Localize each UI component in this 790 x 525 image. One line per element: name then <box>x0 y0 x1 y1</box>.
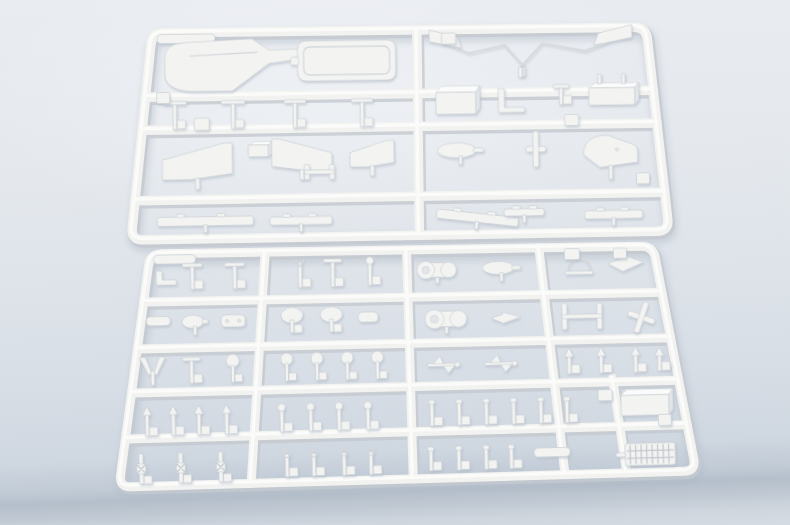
part-ball <box>226 354 243 382</box>
part-post <box>538 397 552 423</box>
part-ball <box>371 351 387 379</box>
part-strip <box>270 213 332 232</box>
part-post <box>564 397 578 423</box>
part-post <box>428 447 442 471</box>
part-plate <box>153 255 195 265</box>
part-pad <box>636 173 649 184</box>
part-winch <box>417 261 457 284</box>
part-wedge <box>162 143 233 190</box>
part-pad <box>613 248 626 258</box>
part-post <box>508 444 522 468</box>
part-box3d <box>589 74 639 106</box>
part-ball <box>341 352 357 380</box>
part-post <box>483 398 497 424</box>
part-plate <box>534 447 570 457</box>
part-post <box>182 357 202 383</box>
part-pad <box>157 92 170 103</box>
part-post <box>631 346 647 372</box>
part-plate <box>358 312 378 322</box>
part-ball <box>280 353 296 381</box>
part-winch <box>425 309 467 334</box>
part-pad <box>598 390 612 401</box>
part-wedge <box>350 140 395 176</box>
part-bollard <box>136 454 152 484</box>
part-post <box>142 406 158 436</box>
part-post <box>429 400 443 426</box>
part-plateOutline <box>290 40 396 81</box>
part-post <box>456 399 470 425</box>
part-plate <box>221 315 245 327</box>
part-dart <box>491 312 521 324</box>
part-box3d <box>436 86 480 115</box>
part-anchor <box>427 355 460 374</box>
part-post <box>368 449 382 475</box>
part-post <box>564 348 580 374</box>
part-post <box>307 403 322 432</box>
part-paddle <box>182 315 208 336</box>
part-post <box>224 263 245 289</box>
part-paddle <box>437 142 483 165</box>
part-post <box>596 347 612 373</box>
part-post <box>483 445 497 469</box>
part-bollard <box>176 453 192 483</box>
part-cross <box>623 298 660 337</box>
part-post <box>222 404 238 434</box>
part-post <box>510 398 524 424</box>
part-paddle <box>482 261 520 282</box>
part-anchor <box>485 354 518 373</box>
product-photo-background <box>0 0 790 525</box>
part-post <box>364 401 379 430</box>
part-dome <box>281 307 303 333</box>
part-post <box>341 450 355 476</box>
part-pad <box>564 248 579 259</box>
part-dome <box>320 307 342 333</box>
sprue-scene <box>0 0 790 525</box>
part-cross <box>526 131 547 167</box>
part-whale <box>583 135 638 180</box>
sprue-upper <box>131 25 670 246</box>
part-elbow <box>156 271 176 285</box>
part-hframe <box>562 303 603 330</box>
part-box3d <box>621 389 674 416</box>
part-post <box>335 402 350 431</box>
part-box3d <box>248 141 272 156</box>
part-ball <box>311 352 327 380</box>
part-post <box>456 446 470 470</box>
part-strip <box>584 207 642 226</box>
part-post <box>168 405 184 435</box>
part-pad <box>658 414 671 425</box>
sprue-lower <box>119 245 696 492</box>
part-bollard <box>216 452 232 482</box>
part-post <box>194 405 210 435</box>
part-post <box>284 451 298 477</box>
part-post <box>310 450 324 476</box>
part-strip <box>157 213 253 234</box>
part-post <box>278 403 293 432</box>
part-post <box>182 263 203 289</box>
part-pad <box>565 114 579 125</box>
part-plate <box>146 316 170 325</box>
part-pad <box>194 118 209 130</box>
part-pad <box>442 33 456 44</box>
part-arc <box>565 258 593 274</box>
